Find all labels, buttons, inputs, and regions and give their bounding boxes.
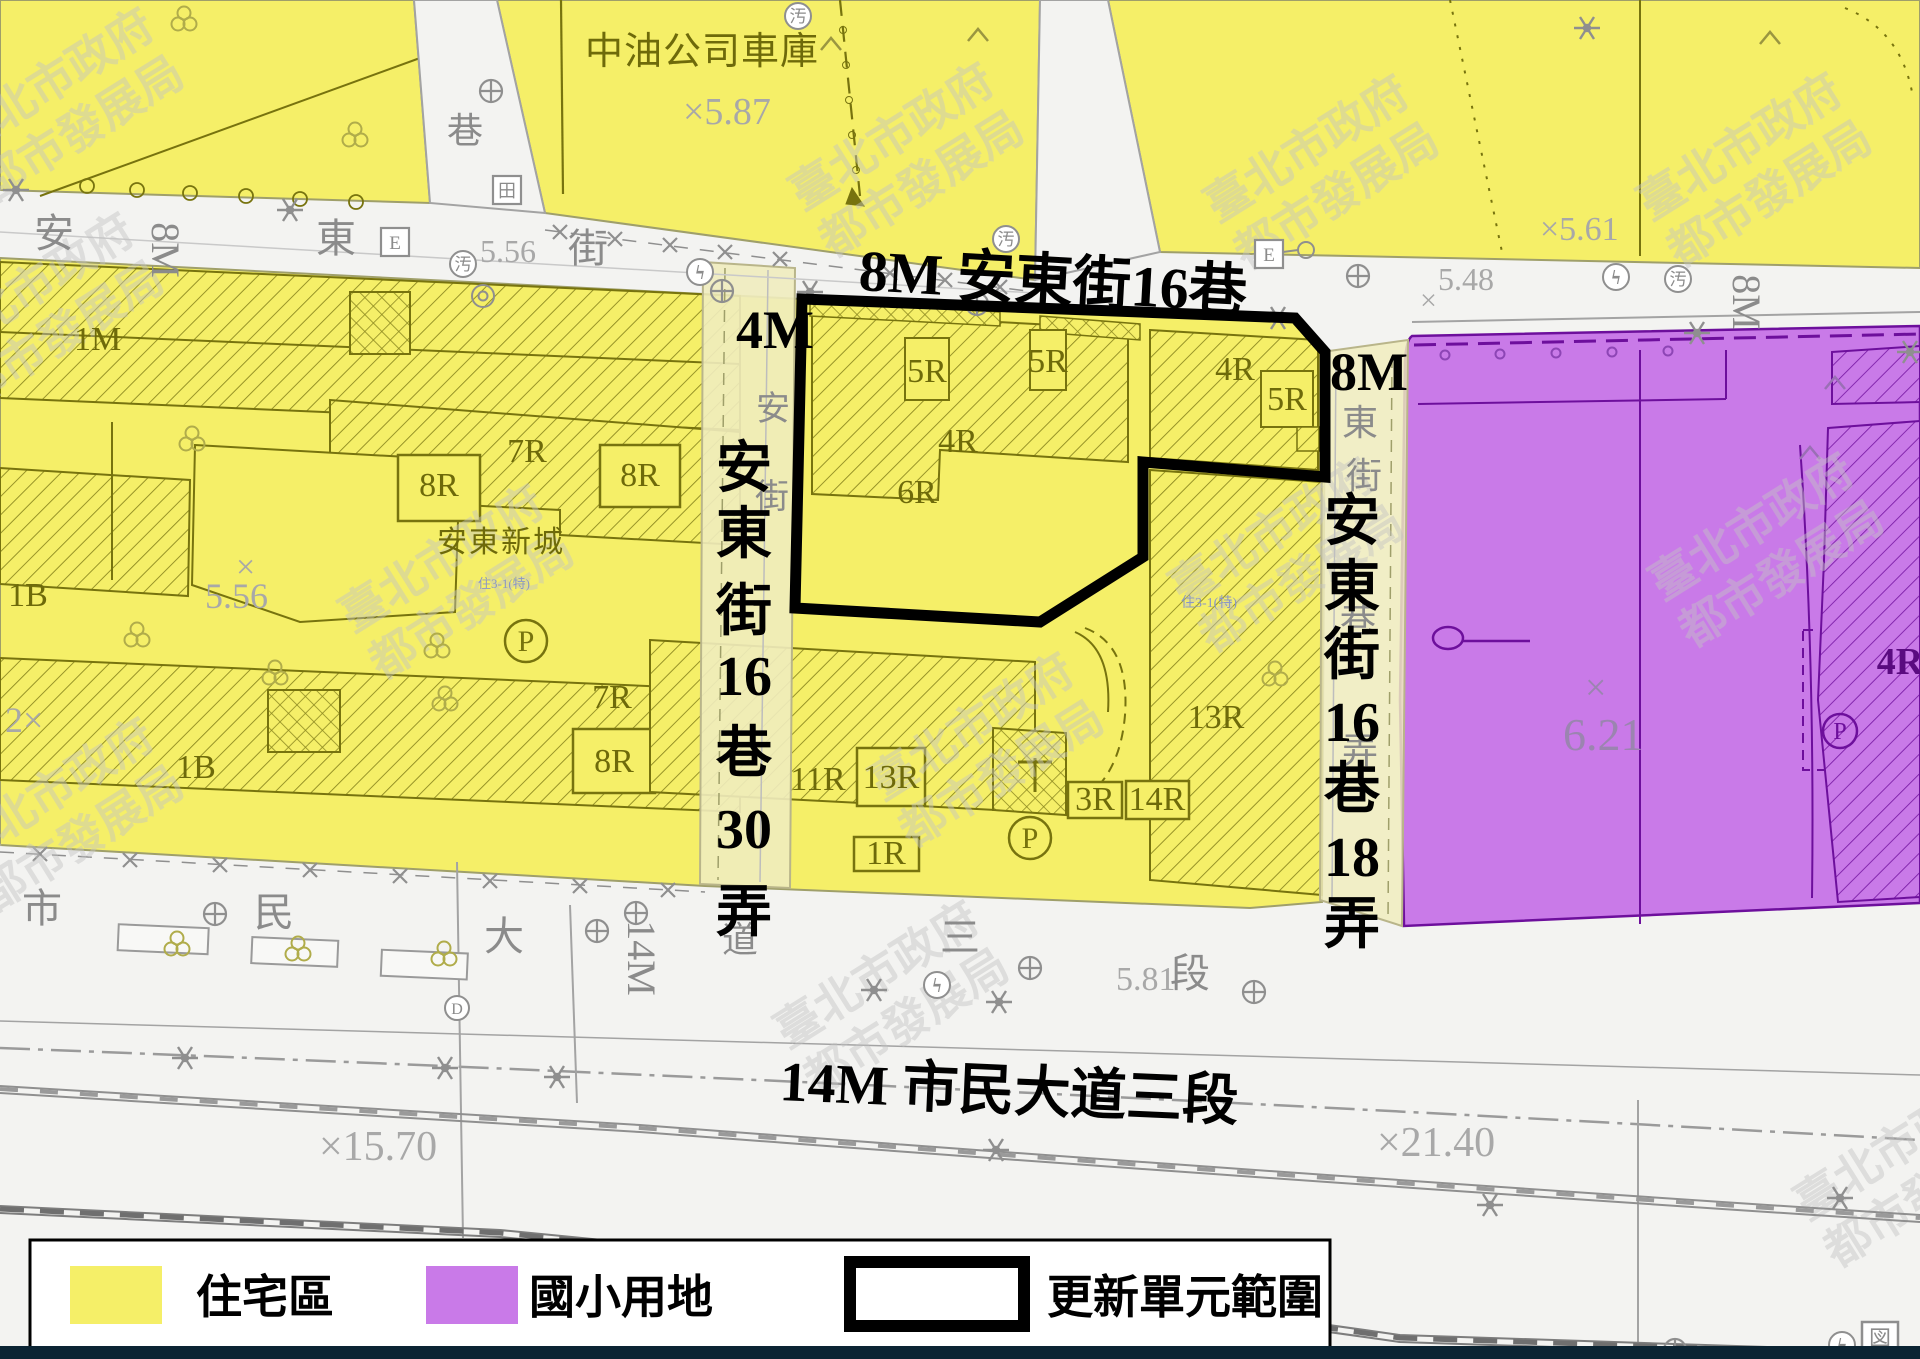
street-char: 段 — [1170, 951, 1210, 996]
parcel-label: 4R — [1877, 641, 1920, 683]
building-crosshatch — [268, 690, 340, 752]
elevation: 5.56 — [205, 576, 268, 616]
legend-label-school: 國小用地 — [529, 1272, 713, 1323]
parcel-label: 4R — [1215, 351, 1255, 388]
street-char: 安 — [756, 390, 790, 428]
lane30-char: 東 — [716, 504, 772, 566]
parcel-label: 3R — [1075, 781, 1115, 818]
lane30-char: 弄 — [716, 882, 772, 944]
lane18-char: 東 — [1324, 557, 1380, 619]
elevation: 5.48 — [1438, 261, 1494, 297]
lane30-char: 街 — [715, 581, 772, 643]
legend-label-renewal-unit: 更新單元範圍 — [1047, 1272, 1323, 1323]
parcel-label: 1B — [8, 577, 48, 614]
sewer-manhole-icon — [450, 251, 476, 277]
parcel-label: 5R — [1028, 343, 1068, 380]
legend-swatch-residential — [70, 1266, 162, 1324]
elevation: 5.56 — [480, 233, 536, 269]
parcel-label: 8R — [419, 467, 459, 504]
elevation: 2× — [5, 700, 43, 740]
lane18-char: 弄 — [1324, 894, 1380, 956]
bus-bay — [118, 924, 209, 954]
elevation: ×15.70 — [319, 1124, 437, 1170]
parcel-label: 13R — [863, 759, 920, 796]
elevation: ×5.87 — [683, 91, 771, 133]
lane30-char: 30 — [716, 799, 772, 861]
street-char: 街 — [1346, 456, 1382, 496]
area-label-cpc-depot: 中油公司車庫 — [585, 31, 819, 73]
parcel-label: 7R — [592, 679, 632, 716]
benchmark-icon — [1019, 957, 1041, 979]
benchmark-icon — [711, 280, 733, 302]
parcel-label: 14R — [1129, 781, 1186, 818]
lane30-char: 16 — [716, 646, 772, 708]
power-manhole-icon — [687, 259, 713, 285]
parcel-label: 1M — [74, 321, 121, 358]
parcel-label: 5R — [907, 353, 947, 390]
parcel-label: 11R — [790, 761, 846, 798]
lane18-char: 安 — [1324, 491, 1380, 553]
elevation: 5.81 — [1116, 961, 1176, 998]
street-char: 東 — [316, 216, 356, 261]
street-width-8m: 8M — [1330, 342, 1408, 402]
street-char: 8M — [143, 222, 188, 278]
sewer-manhole-icon — [1665, 266, 1691, 292]
lane18-char: 16 — [1324, 692, 1380, 754]
elevation: 6.21 — [1563, 709, 1644, 760]
parcel-label: 8R — [594, 743, 634, 780]
elevation-x: × — [1585, 667, 1606, 709]
elevation: ×21.40 — [1377, 1120, 1495, 1166]
school-zone — [1400, 326, 1920, 926]
electric-box-icon — [381, 228, 409, 256]
parcel-label: 13R — [1188, 699, 1245, 736]
area-label-andong-village: 安東新城 — [437, 526, 565, 559]
street-char: 民 — [254, 890, 294, 935]
benchmark-icon — [586, 920, 608, 942]
street-title-lane18: 安 東 街 16 巷 18 弄 — [1323, 491, 1381, 956]
legend-label-residential: 住宅區 — [196, 1272, 334, 1323]
benchmark-icon — [204, 903, 226, 925]
legend: 住宅區 國小用地 更新單元範圍 — [30, 1240, 1330, 1352]
small-structure — [1297, 427, 1319, 451]
parcel-label: 1R — [866, 835, 906, 872]
benchmark-icon — [480, 80, 502, 102]
street-char: 市 — [22, 886, 62, 931]
electric-box-icon — [1255, 240, 1283, 268]
urban-renewal-map: 臺北市政府 都市發展局 汚 ϟ D P P 田 E — [0, 0, 1920, 1359]
legend-swatch-renewal-unit — [850, 1262, 1024, 1326]
parcel-label: 7R — [507, 433, 547, 470]
street-char: 8M — [1724, 274, 1769, 330]
power-manhole-icon — [924, 972, 950, 998]
benchmark-icon — [1243, 981, 1265, 1003]
drain-manhole-icon — [445, 996, 469, 1020]
parcel-label: 5R — [1267, 381, 1307, 418]
legend-swatch-school — [426, 1266, 518, 1324]
lane18-char: 巷 — [1324, 759, 1381, 821]
sewer-manhole-icon — [785, 3, 811, 29]
parcel-label: 8R — [620, 457, 660, 494]
street-char: 14M — [619, 920, 664, 996]
footer-bar — [0, 1346, 1920, 1359]
lane30-char: 安 — [716, 438, 772, 500]
street-width-4m: 4M — [736, 300, 814, 360]
parcel-label: 1B — [176, 749, 216, 786]
lane18-char: 18 — [1324, 827, 1380, 889]
gas-box-icon — [493, 176, 521, 204]
map-canvas: 臺北市政府 都市發展局 汚 ϟ D P P 田 E — [0, 0, 1920, 1359]
street-char: 東 — [1342, 403, 1378, 443]
building-crosshatch — [350, 292, 410, 354]
street-char: 巷 — [447, 111, 483, 151]
zoning-note: 住3-1(特) — [478, 576, 530, 591]
parcel-label: 4R — [938, 423, 978, 460]
elevation-x: × — [1420, 284, 1437, 317]
lane18-char: 街 — [1323, 625, 1380, 687]
street-char: 三 — [940, 915, 980, 960]
elevation: ×5.61 — [1540, 211, 1619, 248]
lane30-char: 巷 — [716, 723, 773, 785]
street-char: 街 — [568, 226, 608, 271]
street-char: 安 — [34, 211, 74, 256]
power-manhole-icon — [1603, 264, 1629, 290]
parcel-label: 6R — [897, 474, 937, 511]
bus-bay — [251, 937, 338, 967]
street-char: 大 — [484, 914, 524, 959]
benchmark-icon — [1347, 265, 1369, 287]
zoning-note: 住3-1(特) — [1181, 595, 1237, 611]
